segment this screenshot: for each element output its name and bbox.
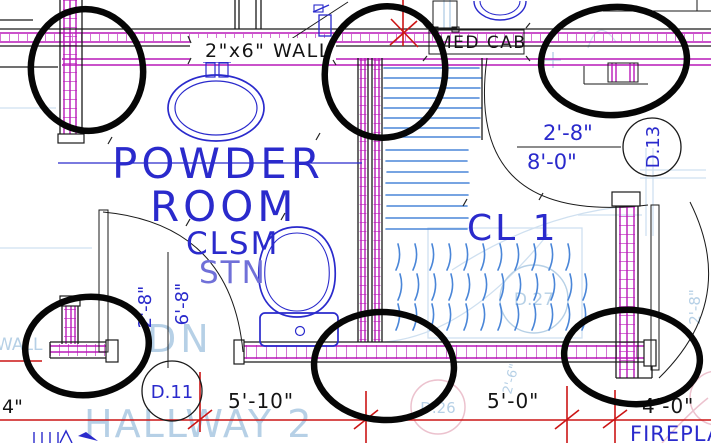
- closet-floor-hatch: [396, 244, 587, 330]
- wall-black-lines: [0, 0, 711, 378]
- door-d11-leaf: [99, 210, 108, 352]
- sink: [168, 62, 264, 141]
- dimension-layer: 2'-8" 8'-0" 2'-8" 6'-8" 4" 5'-10" 5'-0" …: [2, 121, 694, 418]
- med-cab-text: MED CAB: [437, 33, 527, 53]
- floor-plan-screenshot: DN HALLWAY 2 WALL D.26 D.27 2'-8" 2'-6": [0, 0, 711, 443]
- dim-d11-height: 6'-8": [172, 283, 193, 326]
- fireplace-label: FIREPLACE: [630, 422, 711, 443]
- wall-hatch-ticks: [0, 0, 711, 376]
- ghost-underlay: DN HALLWAY 2 WALL D.26 D.27 2'-8" 2'-6": [0, 0, 711, 443]
- wall-note-text: 2"x6" WALL: [205, 40, 331, 62]
- door-tag-d11-text: D.11: [151, 382, 194, 403]
- valve-fixture: [313, 5, 331, 36]
- floor-plan-canvas: DN HALLWAY 2 WALL D.26 D.27 2'-8" 2'-6": [0, 0, 711, 443]
- dim-bottom-left: 5'-10": [228, 389, 294, 413]
- marker-annotation-top-middle: [313, 0, 458, 149]
- marker-annotation-bottom-right: [560, 304, 704, 409]
- stair-treads: [384, 68, 481, 229]
- dim-left-partial: 4": [2, 396, 23, 418]
- left-wall-ghost-label: WALL: [0, 335, 43, 355]
- ghost-dim-right: 2'-8": [686, 289, 704, 325]
- door-tag-d13: D.13: [623, 118, 681, 176]
- closet-label: CL 1: [467, 208, 559, 249]
- door-tag-d13-text: D.13: [643, 126, 664, 169]
- dim-d13-width: 2'-8": [543, 121, 593, 145]
- dim-bottom-middle: 5'-0": [487, 389, 539, 413]
- upper-lavatory: [474, 1, 526, 20]
- marker-annotation-top-right: [537, 2, 690, 120]
- powder-room-label-line2: ROOM: [150, 182, 298, 231]
- marker-annotation-top-left: [21, 0, 152, 140]
- marker-annotation-bottom-middle: [311, 308, 456, 423]
- dim-d13-height: 8'-0": [527, 150, 577, 174]
- wall-magenta-lines: [0, 0, 711, 378]
- powder-room-sublabel-2: STN: [199, 255, 267, 291]
- powder-room-label-line1: POWDER: [112, 139, 324, 188]
- red-dimension-layer: [0, 0, 711, 443]
- medicine-cabinet: [431, 1, 459, 32]
